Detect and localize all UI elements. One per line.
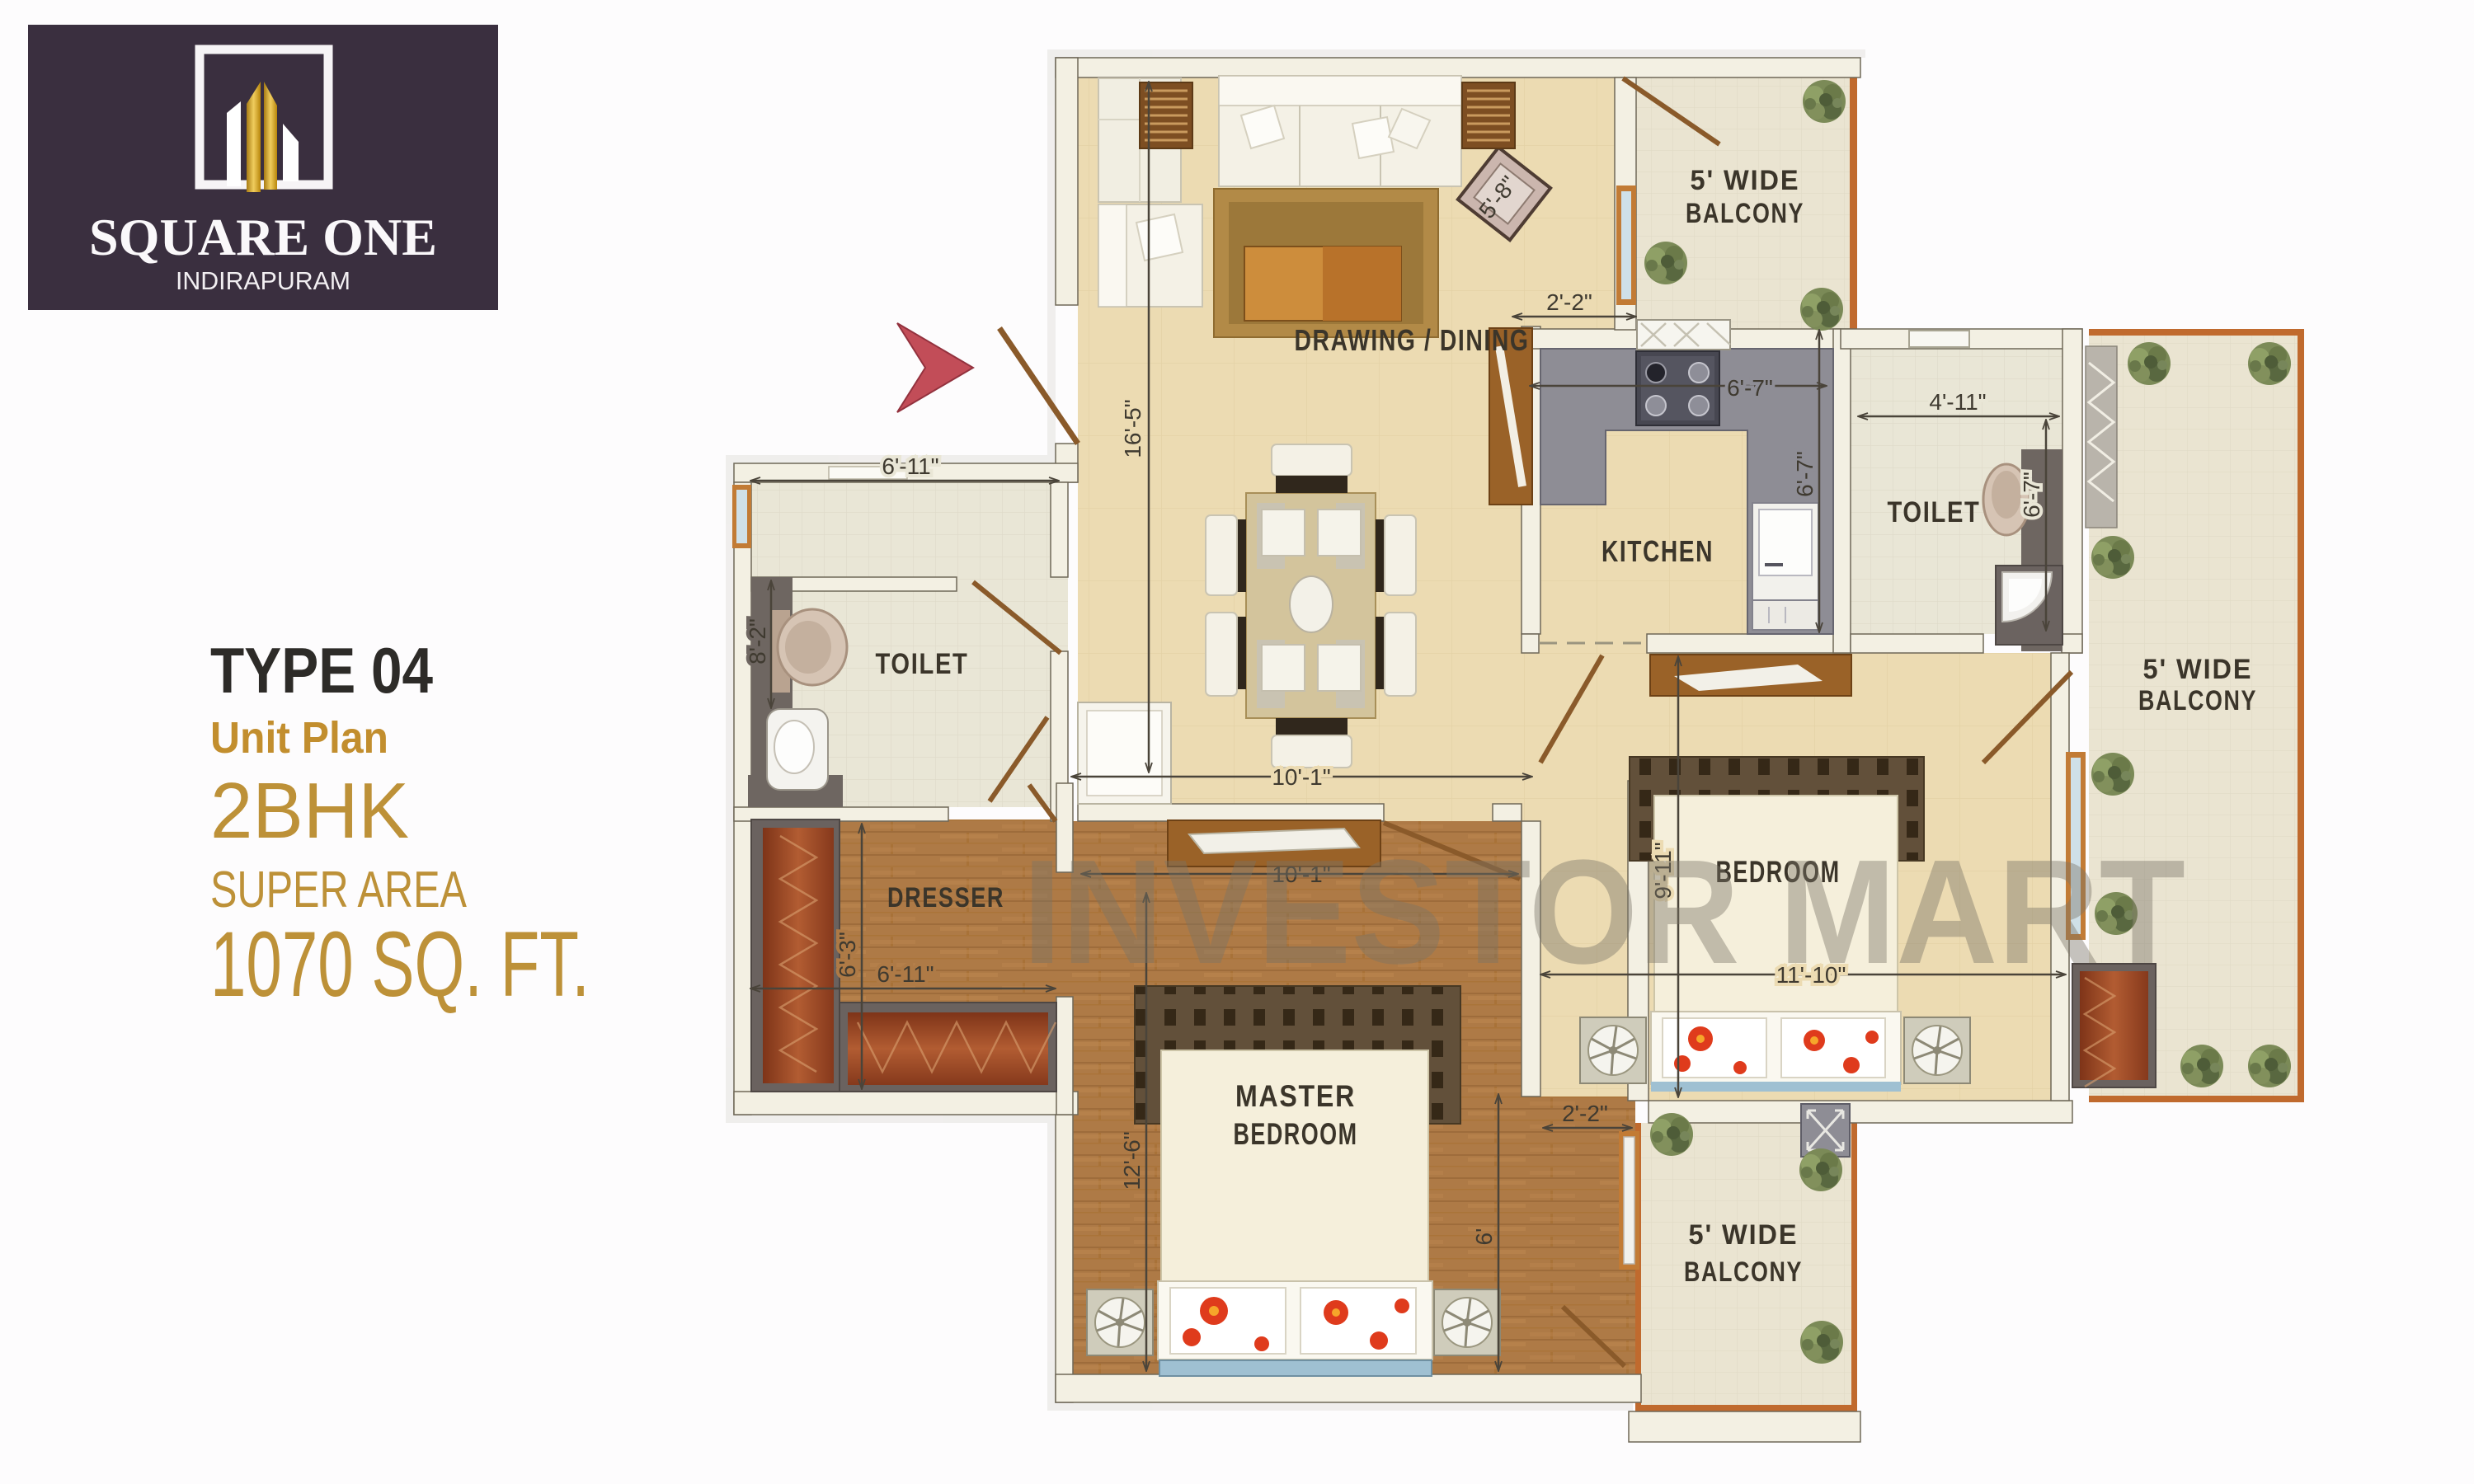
svg-text:BALCONY: BALCONY — [1686, 198, 1804, 229]
svg-text:6'-7": 6'-7" — [1792, 451, 1818, 497]
svg-text:6'-7": 6'-7" — [2019, 472, 2044, 518]
svg-text:6': 6' — [1471, 1228, 1497, 1246]
svg-text:10'-1": 10'-1" — [1272, 764, 1330, 790]
svg-text:KITCHEN: KITCHEN — [1602, 534, 1714, 568]
svg-text:DRESSER: DRESSER — [887, 882, 1004, 913]
svg-text:INDIRAPURAM: INDIRAPURAM — [176, 266, 350, 295]
svg-text:TYPE 04: TYPE 04 — [210, 634, 433, 707]
svg-text:BALCONY: BALCONY — [1684, 1256, 1803, 1288]
svg-text:5' WIDE: 5' WIDE — [2143, 654, 2253, 685]
svg-text:DRAWING / DINING: DRAWING / DINING — [1295, 323, 1530, 357]
svg-text:6'-3": 6'-3" — [835, 932, 860, 978]
svg-text:SQUARE ONE: SQUARE ONE — [89, 208, 437, 266]
svg-text:INVESTOR MART: INVESTOR MART — [1023, 829, 2185, 995]
svg-text:6'-11": 6'-11" — [882, 453, 938, 479]
svg-text:2'-2": 2'-2" — [1562, 1101, 1608, 1126]
svg-text:6'-11": 6'-11" — [877, 961, 934, 987]
svg-text:16'-5": 16'-5" — [1120, 399, 1145, 458]
svg-text:12'-6": 12'-6" — [1119, 1131, 1145, 1190]
svg-text:MASTER: MASTER — [1235, 1079, 1356, 1113]
svg-text:2BHK: 2BHK — [210, 767, 409, 855]
svg-text:TOILET: TOILET — [1888, 496, 1981, 528]
svg-text:2'-2": 2'-2" — [1546, 289, 1592, 315]
svg-text:1070 SQ. FT.: 1070 SQ. FT. — [210, 913, 590, 1016]
svg-text:5' WIDE: 5' WIDE — [1691, 165, 1800, 196]
svg-text:8'-2": 8'-2" — [745, 618, 770, 665]
svg-text:BALCONY: BALCONY — [2138, 685, 2257, 716]
svg-text:4'-11": 4'-11" — [1929, 389, 1986, 415]
svg-text:TOILET: TOILET — [876, 648, 969, 680]
svg-text:6'-7": 6'-7" — [1727, 375, 1773, 401]
svg-text:BEDROOM: BEDROOM — [1234, 1117, 1358, 1151]
svg-text:Unit Plan: Unit Plan — [210, 713, 388, 763]
svg-text:5' WIDE: 5' WIDE — [1689, 1219, 1799, 1251]
svg-text:SUPER AREA: SUPER AREA — [210, 862, 468, 918]
